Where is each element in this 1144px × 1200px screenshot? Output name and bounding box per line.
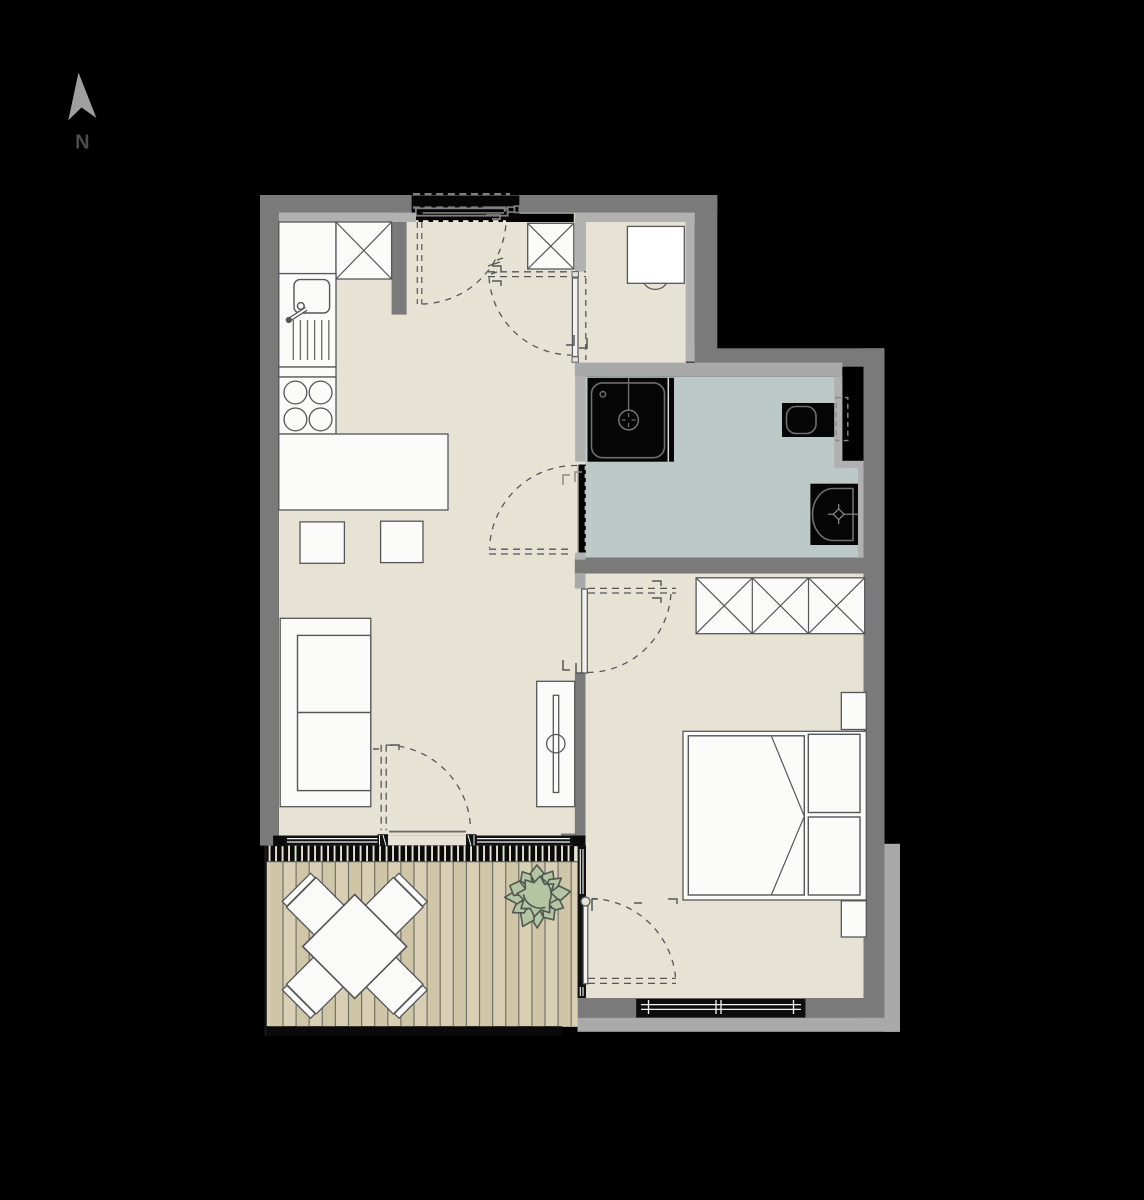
- svg-text:N: N: [75, 132, 89, 154]
